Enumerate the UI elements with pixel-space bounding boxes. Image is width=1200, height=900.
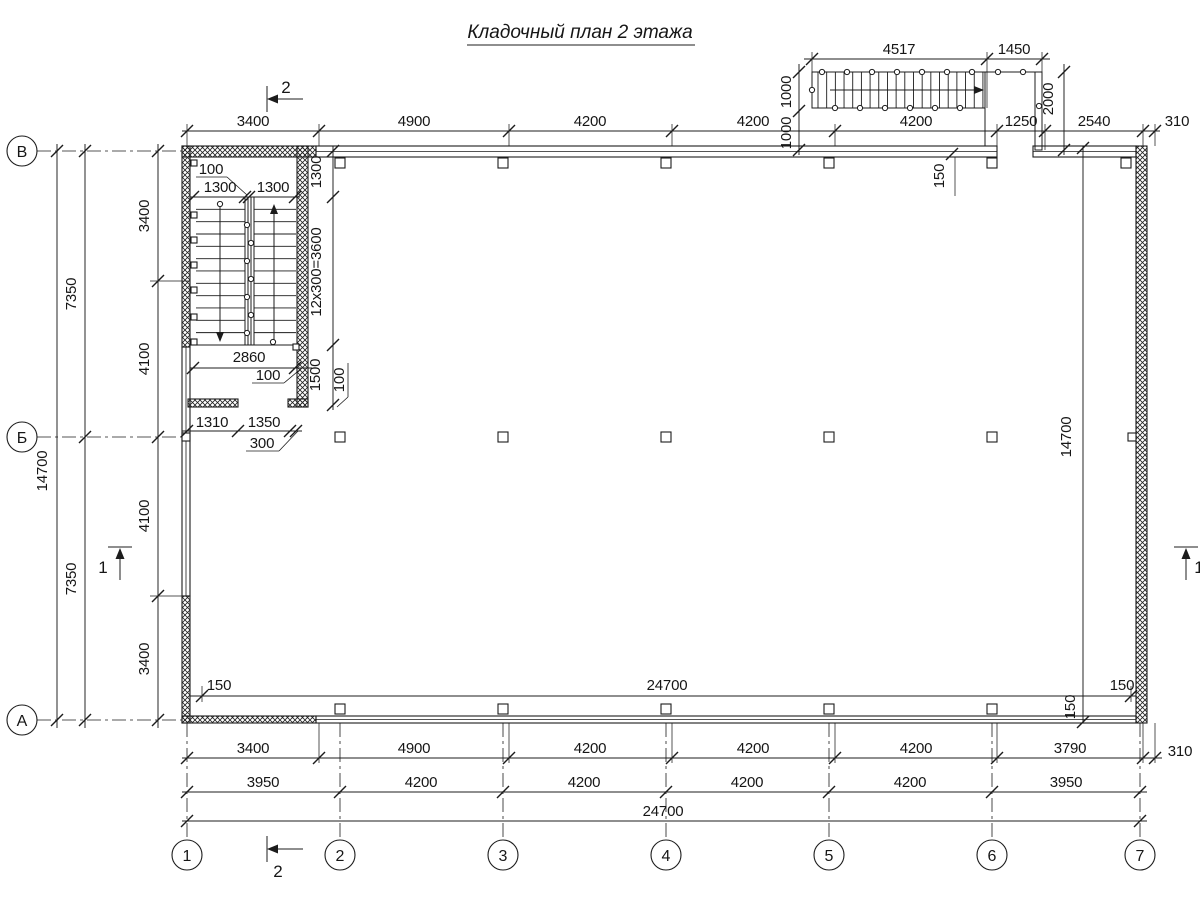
dim-label: 3400 (237, 740, 270, 757)
baluster-circle (995, 69, 1000, 74)
dim-label: 2540 (1078, 113, 1111, 130)
baluster-circle (957, 105, 962, 110)
baluster-circle (809, 87, 814, 92)
dim-label: 1300 (204, 179, 237, 196)
column-marker (335, 704, 345, 714)
paper-background (0, 0, 1200, 900)
dim-label: 4200 (405, 774, 438, 791)
dim-label: 1350 (248, 414, 281, 431)
dim-label: 4200 (737, 740, 770, 757)
column-marker (987, 704, 997, 714)
baluster-circle (244, 330, 249, 335)
column-marker (824, 432, 834, 442)
bottom-wall-masonry (182, 716, 316, 723)
column-marker (661, 704, 671, 714)
dim-label: 3950 (247, 774, 280, 791)
right-wall-masonry (1136, 146, 1147, 723)
dim-label: 12x300=3600 (308, 227, 325, 316)
drawing-title: Кладочный план 2 этажа (467, 22, 692, 43)
axis-label: 3 (499, 848, 508, 865)
dim-label: 4517 (883, 41, 916, 58)
dim-label: 1000 (778, 117, 795, 150)
section-marker-label: 2 (273, 862, 282, 881)
dim-label: 4200 (894, 774, 927, 791)
left-wall-masonry-upper (182, 146, 190, 347)
baluster-circle (907, 105, 912, 110)
baluster-circle (857, 105, 862, 110)
dim-label: 14700 (34, 451, 51, 492)
column-marker (1121, 158, 1131, 168)
dim-label: 1300 (308, 156, 325, 189)
baluster-circle (244, 294, 249, 299)
baluster-circle (244, 222, 249, 227)
dim-label: 1300 (257, 179, 290, 196)
dim-label: 2860 (233, 349, 266, 366)
column-marker (335, 432, 345, 442)
dim-label: 2000 (1040, 83, 1057, 116)
dim-label: 4200 (568, 774, 601, 791)
dim-label: 3790 (1054, 740, 1087, 757)
axis-label: 2 (336, 848, 345, 865)
column-marker (498, 432, 508, 442)
baluster-circle (869, 69, 874, 74)
axis-label: 7 (1136, 848, 1145, 865)
column-marker (191, 339, 197, 345)
masonry-plan-page: Кладочный план 2 этажа (0, 0, 1200, 900)
dim-label: 4200 (737, 113, 770, 130)
dim-label: 100 (199, 161, 223, 178)
axis-label: 4 (662, 848, 671, 865)
axis-label: 5 (825, 848, 834, 865)
dim-label: 24700 (643, 803, 684, 820)
baluster-circle (819, 69, 824, 74)
dim-label: 1250 (1005, 113, 1038, 130)
dim-label: 3400 (136, 643, 153, 676)
baluster-circle (844, 69, 849, 74)
dim-label: 14700 (1058, 417, 1075, 458)
dim-label: 1500 (307, 359, 324, 392)
dim-label: 150 (1062, 695, 1079, 719)
dim-label: 4200 (574, 740, 607, 757)
column-marker (661, 158, 671, 168)
dim-label: 100 (331, 368, 348, 392)
dim-label: 3400 (136, 200, 153, 233)
section-marker-label: 2 (281, 78, 290, 97)
baluster-circle (1020, 69, 1025, 74)
dim-label: 4900 (398, 113, 431, 130)
column-marker (824, 704, 834, 714)
axis-label: 1 (183, 848, 192, 865)
dim-label: 4200 (731, 774, 764, 791)
dim-label: 4100 (136, 500, 153, 533)
baluster-circle (248, 240, 253, 245)
stub-wall-right (288, 399, 308, 407)
dim-label: 4100 (136, 343, 153, 376)
baluster-circle (832, 105, 837, 110)
left-wall-masonry-lower (182, 596, 190, 723)
column-marker (191, 160, 197, 166)
top-wall-masonry (182, 146, 316, 157)
column-marker (191, 314, 197, 320)
baluster-circle (894, 69, 899, 74)
dim-label: 7350 (63, 563, 80, 596)
column-marker (498, 158, 508, 168)
column-marker (293, 344, 299, 350)
section-marker-label: 1 (98, 558, 107, 577)
dim-label: 4200 (574, 113, 607, 130)
dim-label: 150 (1110, 677, 1134, 694)
baluster-circle (969, 69, 974, 74)
dim-label: 310 (1165, 113, 1189, 130)
column-marker (498, 704, 508, 714)
dim-label: 1310 (196, 414, 229, 431)
column-marker (1128, 433, 1136, 441)
dim-label: 3400 (237, 113, 270, 130)
section-marker-label: 1 (1194, 558, 1200, 577)
baluster-circle (270, 339, 275, 344)
column-marker (824, 158, 834, 168)
axis-label: 6 (988, 848, 997, 865)
dim-label: 1000 (778, 76, 795, 109)
dim-label: 3950 (1050, 774, 1083, 791)
column-marker (987, 432, 997, 442)
dim-label: 1450 (998, 41, 1031, 58)
dim-label: 150 (207, 677, 231, 694)
axis-label: В (17, 144, 28, 161)
column-marker (987, 158, 997, 168)
baluster-circle (244, 258, 249, 263)
baluster-circle (248, 312, 253, 317)
masonry-plan-drawing: Кладочный план 2 этажа (0, 0, 1200, 900)
axis-label: А (17, 713, 28, 730)
baluster-circle (217, 201, 222, 206)
dim-label: 24700 (647, 677, 688, 694)
column-marker (661, 432, 671, 442)
axis-label: Б (17, 430, 28, 447)
column-marker (191, 237, 197, 243)
dim-label: 4200 (900, 740, 933, 757)
dim-label: 4200 (900, 113, 933, 130)
column-marker (191, 262, 197, 268)
stub-wall-left (188, 399, 238, 407)
baluster-circle (882, 105, 887, 110)
column-marker (191, 212, 197, 218)
baluster-circle (919, 69, 924, 74)
baluster-circle (932, 105, 937, 110)
column-marker (335, 158, 345, 168)
dim-label: 310 (1168, 743, 1192, 760)
dim-label: 150 (931, 164, 948, 188)
dim-label: 100 (256, 367, 280, 384)
baluster-circle (944, 69, 949, 74)
baluster-circle (248, 276, 253, 281)
dim-label: 7350 (63, 278, 80, 311)
dim-label: 4900 (398, 740, 431, 757)
dim-label: 300 (250, 435, 274, 452)
column-marker (191, 287, 197, 293)
